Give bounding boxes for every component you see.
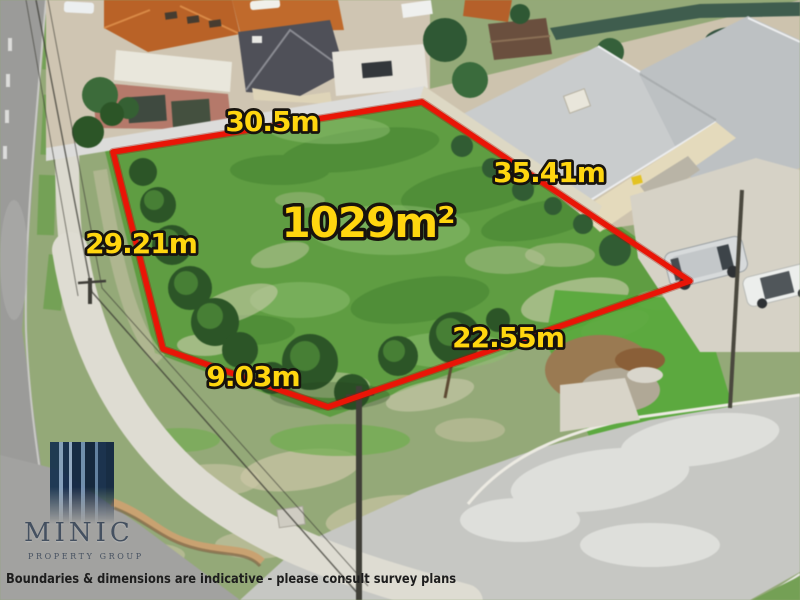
disclaimer-text: Boundaries & dimensions are indicative -… — [6, 571, 456, 587]
listing-photo: 30.5m 35.41m 29.21m 1029m² 22.55m 9.03m — [0, 0, 800, 600]
lot-boundary-outline — [113, 102, 690, 407]
boundary-overlay: 30.5m 35.41m 29.21m 1029m² 22.55m 9.03m — [0, 0, 800, 600]
dimension-label-left: 29.21m — [85, 227, 197, 260]
dimension-label-bottom-right: 22.55m — [452, 321, 564, 354]
area-label: 1029m² — [281, 198, 454, 247]
dimension-label-top: 30.5m — [225, 105, 318, 138]
dimension-label-bottom-left: 9.03m — [206, 360, 299, 393]
dimension-label-right: 35.41m — [493, 156, 605, 189]
